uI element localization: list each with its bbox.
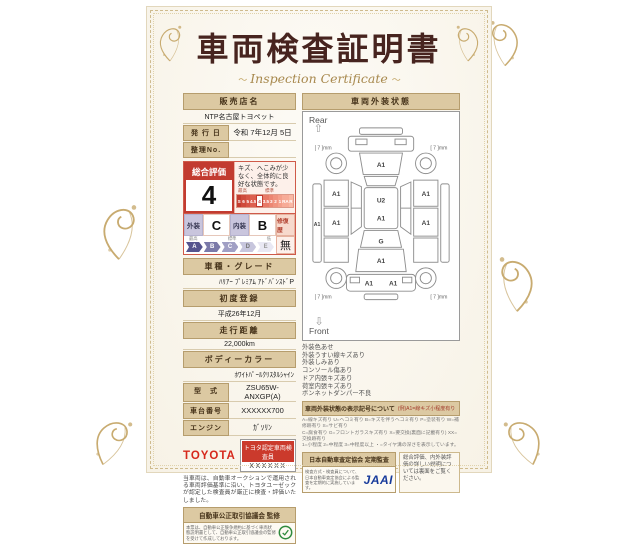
tire-depth-rear-right: [ 7 ]mm xyxy=(430,145,447,151)
ref-no-row: 整理No. xyxy=(183,142,296,158)
vehicle-info-column: 販売店名 NTP名古屋トヨペット 発 行 日 令和 7年12月 5日 整理No.… xyxy=(183,93,296,544)
condition-note: ボンネットダンパー不良 xyxy=(302,390,460,398)
legend-header: 車両外装状態の表示記号について (例)A1=線キズ小程度有り xyxy=(302,401,460,416)
exterior-grade-value: C xyxy=(203,214,230,236)
grade-chevron: C xyxy=(222,242,239,252)
tire-depth-rear-left: [ 7 ]mm xyxy=(315,145,332,151)
first-reg-header: 初度登録 xyxy=(183,290,296,307)
ref-no-label: 整理No. xyxy=(183,142,229,158)
dealer-value: NTP名古屋トヨペット xyxy=(183,110,296,124)
issue-date-row: 発 行 日 令和 7年12月 5日 xyxy=(183,125,296,141)
certificate-page: 車両検査証明書 ～ Inspection Certificate ～ 販売店名 … xyxy=(146,6,492,473)
engine-value: ｶﾞｿﾘﾝ xyxy=(229,420,296,436)
panel-label-hood: A1 xyxy=(377,258,386,265)
model-grade-header: 車種・グレード xyxy=(183,258,296,275)
fair-trade-box: 自動車公正取引協議会 監修 本票は、自動車公正競争規約に基づく車両状態説明書とし… xyxy=(183,507,296,544)
car-top-view-diagram: A1 U2 A1 G A1 A1 A1 A1 A1 A1 A1 A1 xyxy=(311,126,451,322)
assessment-description: キズ、へこみが少なく、全体的に良好な状態です。 xyxy=(236,163,294,188)
overall-score-value: 4 xyxy=(186,180,232,211)
disclaimer-text: 当車両は、自動車オークションで運用される車両評価基準に沿い、トヨタユーゼックが認… xyxy=(183,476,296,505)
back-note: 総合評価、内外装評価の詳しい説明については裏面をご覧ください。 xyxy=(399,452,460,493)
condition-note: 外装色あせ xyxy=(302,344,460,352)
overall-score-label: 総合評価 xyxy=(186,164,232,180)
panel-label-gate: A1 xyxy=(377,162,386,169)
engine-row: エンジン ｶﾞｿﾘﾝ xyxy=(183,420,296,436)
assessment-box: 総合評価 4 キズ、へこみが少なく、全体的に良好な状態です。 最高 標準 S 6 xyxy=(183,161,296,255)
subtitle-ornament: ～ xyxy=(238,76,246,86)
scale-cell: R xyxy=(289,195,293,207)
inspector-badge: トヨタ認定車両検査員 xyxy=(242,441,294,462)
chassis-label: 車台番号 xyxy=(183,403,229,419)
panel-label-right-door: A1 xyxy=(422,220,431,227)
grade-label-low: 低 xyxy=(267,236,271,242)
issue-date-label: 発 行 日 xyxy=(183,125,229,141)
flourish-ornament xyxy=(96,190,142,264)
chassis-row: 車台番号 XXXXXX700 xyxy=(183,403,296,419)
title-flourish-icon xyxy=(453,17,483,63)
interior-grade-label: 内装 xyxy=(230,214,249,236)
model-grade-value: ﾊﾘｱｰ ﾌﾟﾚﾐｱﾑ ｱﾄﾞﾊﾞﾝｽﾄﾞP xyxy=(183,275,296,289)
grade-chevron: B xyxy=(204,242,221,252)
legend-example: (例)A1=線キズ小程度有り xyxy=(398,405,455,412)
type-value: ZSU65W-ANXGP(A) xyxy=(229,383,296,402)
legend-line: C=腐食有り G=フロントガラスキズ有り X=要交換(裏面に記載有り) XX=交… xyxy=(302,431,460,444)
issue-date-value: 令和 7年12月 5日 xyxy=(229,125,296,141)
legend-body: A=線キズ有り U=ヘコミ有り B=キズを伴うヘコミ有り P=塗装有り W=補修… xyxy=(302,418,460,449)
interior-grade-value: B xyxy=(249,214,276,236)
car-diagram-box: Rear ⇧ ⇩ Front xyxy=(302,111,460,341)
scale-cell: RA xyxy=(282,195,289,207)
first-reg-value: 平成26年12月 xyxy=(183,307,296,321)
grade-chevron: D xyxy=(239,242,256,252)
score-scale: S 6 5 4.5 4 3.5 3 2 1 RA R xyxy=(236,194,294,208)
panel-label-roof-u2: U2 xyxy=(377,198,386,205)
grade-label-best: 最高 xyxy=(189,236,198,242)
audit-box: 日本自動車査定協会 定期監査 検査方式・検査員について、日本自動車査定協会による… xyxy=(302,452,396,493)
legend-line: A=線キズ有り U=ヘコミ有り B=キズを伴うヘコミ有り P=塗装有り W=補修… xyxy=(302,418,460,431)
panel-label-right-quarter: A1 xyxy=(422,191,431,198)
tire-depth-front-left: [ 7 ]mm xyxy=(315,295,332,301)
body-color-value: ﾎﾜｲﾄﾊﾟｰﾙｸﾘｽﾀﾙｼｬｲﾝ xyxy=(183,368,296,382)
inspector-block: TOYOTA トヨタ認定車両検査員 XXXXXX xyxy=(183,439,296,472)
overall-score-box: 総合評価 4 xyxy=(184,162,234,213)
body-color-header: ボディーカラー xyxy=(183,351,296,368)
subtitle-ornament: ～ xyxy=(392,76,400,86)
repair-history-value: 無 xyxy=(276,236,295,254)
fair-trade-header: 自動車公正取引協議会 監修 xyxy=(184,508,295,523)
mileage-header: 走行距離 xyxy=(183,322,296,339)
toyota-logo: TOYOTA xyxy=(183,450,236,462)
mileage-value: 22,000km xyxy=(183,339,296,350)
assessment-detail: キズ、へこみが少なく、全体的に良好な状態です。 最高 標準 S 6 5 4.5 … xyxy=(234,162,295,213)
grade-chevron: A xyxy=(186,242,203,252)
type-row: 型 式 ZSU65W-ANXGP(A) xyxy=(183,383,296,402)
flourish-ornament xyxy=(76,399,148,475)
scale-label-standard: 標準 xyxy=(265,188,274,194)
grade-chevron: E xyxy=(257,242,274,252)
fair-trade-stamp-icon xyxy=(278,525,293,540)
legend-title: 車両外装状態の表示記号について xyxy=(305,404,395,413)
panel-label-bumper-right: A1 xyxy=(389,281,398,288)
condition-note: 外装しみあり xyxy=(302,359,460,367)
type-label: 型 式 xyxy=(183,383,229,402)
inspector-id: XXXXXX xyxy=(242,462,294,470)
panel-label-left-quarter: A1 xyxy=(332,191,341,198)
exterior-grade-label: 外装 xyxy=(184,214,203,236)
grade-scale: 最高 標準 低 A B C D E xyxy=(184,236,276,254)
page-title: 車両検査証明書 xyxy=(147,24,491,70)
dealer-header: 販売店名 xyxy=(183,93,296,110)
condition-note: ドア内張キズあり xyxy=(302,375,460,383)
page-subtitle: ～ Inspection Certificate ～ xyxy=(147,71,491,86)
title-flourish-icon xyxy=(155,17,185,63)
audit-header: 日本自動車査定協会 定期監査 xyxy=(303,453,395,467)
exterior-condition-column: 車両外装状態 Rear ⇧ ⇩ Front xyxy=(302,93,460,544)
repair-history-label: 修復歴 xyxy=(276,214,295,236)
panel-label-windshield: G xyxy=(378,239,383,246)
inspector-box: トヨタ認定車両検査員 XXXXXX xyxy=(240,439,296,472)
subtitle-text: Inspection Certificate xyxy=(250,71,388,86)
panel-label-left-door: A1 xyxy=(332,220,341,227)
condition-note: コンソール傷あり xyxy=(302,367,460,375)
exterior-header: 車両外装状態 xyxy=(302,93,460,110)
grade-label-standard: 標準 xyxy=(228,236,237,242)
tire-depth-front-right: [ 7 ]mm xyxy=(430,295,447,301)
panel-label-bumper-left: A1 xyxy=(365,281,374,288)
front-label: Front xyxy=(309,326,329,336)
fair-trade-body: 本票は、自動車公正競争規約に基づく車両状態説明書として、自動車公正取引協議会の監… xyxy=(186,525,276,541)
flourish-ornament xyxy=(494,238,540,320)
exterior-interior-grid: 外装 C 内装 B 修復歴 最高 標準 低 A B xyxy=(184,213,295,254)
condition-notes: 外装色あせ 外装うすい線キズあり 外装しみあり コンソール傷あり ドア内張キズあ… xyxy=(302,344,460,398)
engine-label: エンジン xyxy=(183,420,229,436)
ref-no-value xyxy=(229,142,296,158)
scale-label-best: 最高 xyxy=(238,188,247,194)
panel-label-left-sill: A1 xyxy=(314,222,321,228)
chassis-value: XXXXXX700 xyxy=(229,403,296,419)
legend-line: 1=小程度 2=中程度 3=中程度以上 ・=タイヤ溝の深さを表示しています。 xyxy=(302,443,460,449)
panel-label-roof-a1: A1 xyxy=(377,215,386,222)
flourish-ornament xyxy=(488,399,560,475)
